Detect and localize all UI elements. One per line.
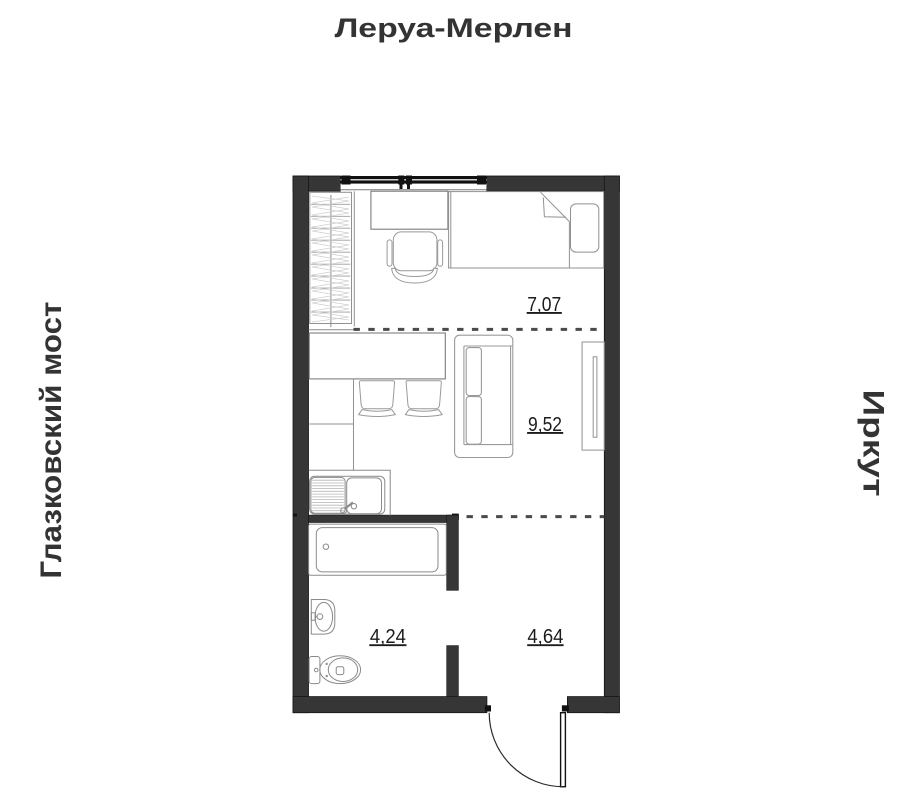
svg-text:Леруа-Мерлен: Леруа-Мерлен	[335, 12, 573, 43]
svg-text:Глазковский мост: Глазковский мост	[35, 302, 68, 579]
svg-text:Иркут: Иркут	[857, 390, 890, 497]
